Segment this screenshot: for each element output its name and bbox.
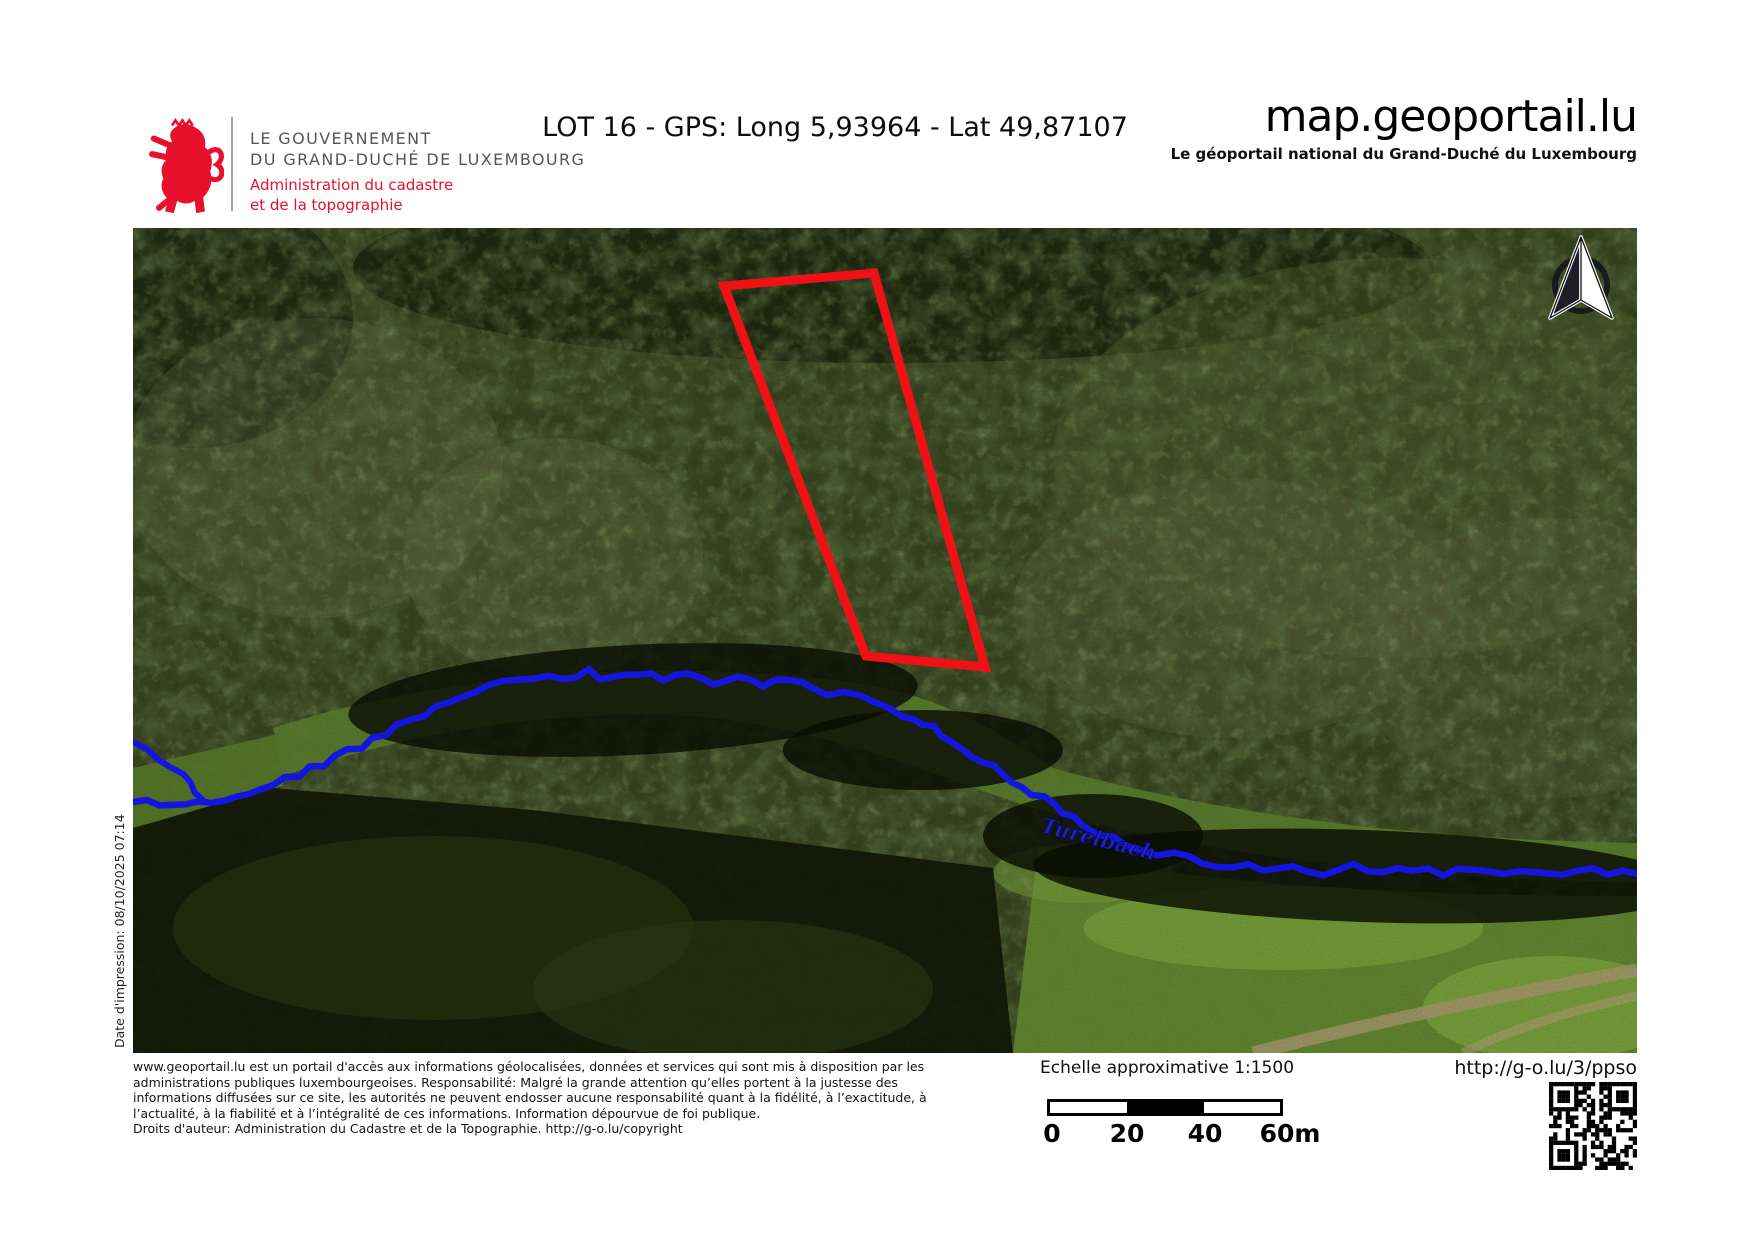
administration-line-1: Administration du cadastre: [250, 175, 585, 195]
scale-area: Echelle approximative 1:1500 0 20 40 60m: [1040, 1058, 1300, 1149]
page-title: LOT 16 - GPS: Long 5,93964 - Lat 49,8710…: [480, 112, 1190, 143]
disclaimer-text: www.geoportail.lu est un portail d'accès…: [133, 1059, 993, 1137]
scale-ticks: 0 20 40 60m: [1047, 1119, 1300, 1149]
scale-segment-black: [1127, 1102, 1204, 1113]
qr-code: [1549, 1082, 1637, 1170]
disclaimer-line: www.geoportail.lu est un portail d'accès…: [133, 1059, 993, 1075]
aerial-map-image: Turelbach: [133, 228, 1637, 1053]
scale-segment-white: [1050, 1102, 1127, 1113]
scale-tick-0: 0: [1043, 1119, 1060, 1148]
disclaimer-line: l’actualité, à la fiabilité et à l’intég…: [133, 1106, 993, 1122]
print-date: Date d'impression: 08/10/2025 07:14: [112, 814, 127, 1048]
gov-line-2: DU GRAND-DUCHÉ DE LUXEMBOURG: [250, 149, 585, 170]
logo-divider: [231, 117, 233, 211]
scale-tick-40: 40: [1188, 1119, 1223, 1148]
scale-segment-white: [1204, 1102, 1280, 1113]
administration-line-2: et de la topographie: [250, 195, 585, 215]
disclaimer-copyright-line: Droits d'auteur: Administration du Cadas…: [133, 1121, 993, 1137]
scale-label: Echelle approximative 1:1500: [1040, 1058, 1300, 1078]
disclaimer-line: administrations publiques luxembourgeois…: [133, 1075, 993, 1091]
site-name: map.geoportail.lu: [1171, 94, 1637, 140]
scale-tick-60m: 60m: [1260, 1119, 1321, 1148]
disclaimer-line: informations diffusées sur ce site, les …: [133, 1090, 993, 1106]
scale-tick-20: 20: [1110, 1119, 1145, 1148]
site-branding: map.geoportail.lu Le géoportail national…: [1171, 94, 1637, 163]
scale-bar: [1047, 1099, 1283, 1116]
luxembourg-lion-logo: [146, 118, 224, 218]
site-subtitle: Le géoportail national du Grand-Duché du…: [1171, 145, 1637, 163]
short-url-link[interactable]: http://g-o.lu/3/ppso: [1454, 1057, 1637, 1079]
